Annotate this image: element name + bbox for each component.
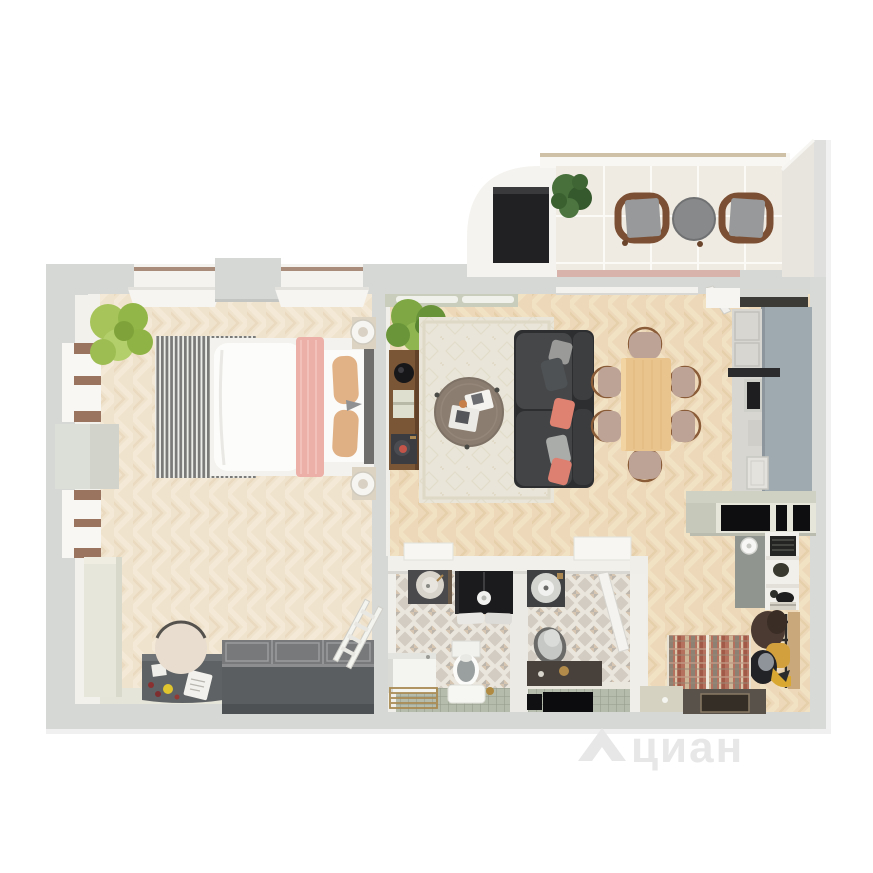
svg-text:циан: циан [631,723,744,772]
